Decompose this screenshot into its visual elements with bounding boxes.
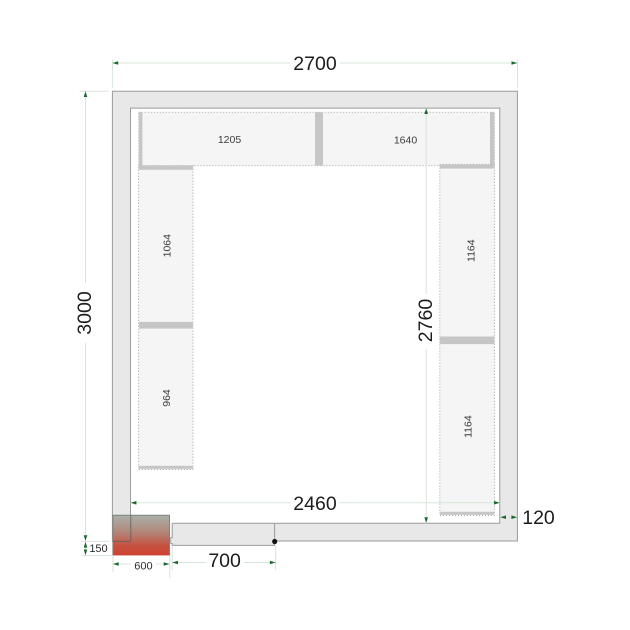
- svg-text:1164: 1164: [463, 415, 475, 438]
- svg-text:964: 964: [161, 389, 173, 407]
- svg-text:1064: 1064: [161, 234, 173, 258]
- svg-text:120: 120: [522, 507, 555, 529]
- svg-text:1205: 1205: [218, 134, 242, 146]
- svg-text:2460: 2460: [293, 493, 337, 515]
- svg-text:2760: 2760: [415, 299, 437, 343]
- svg-text:600: 600: [134, 561, 152, 573]
- svg-text:1164: 1164: [465, 239, 477, 262]
- svg-text:150: 150: [89, 543, 107, 555]
- svg-text:3000: 3000: [74, 291, 96, 335]
- svg-text:2700: 2700: [293, 53, 337, 75]
- svg-text:700: 700: [208, 550, 241, 572]
- svg-text:1640: 1640: [394, 134, 418, 146]
